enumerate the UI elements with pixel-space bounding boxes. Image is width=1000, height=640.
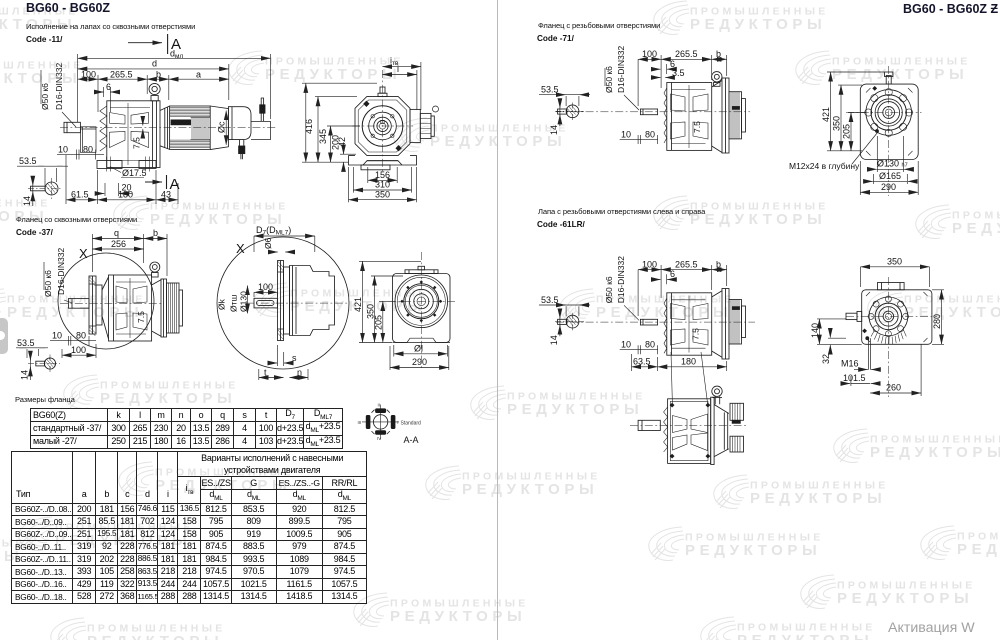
svg-text:10: 10 [621, 129, 631, 139]
svg-text:D16-DIN332: D16-DIN332 [54, 62, 64, 110]
svg-text:310: 310 [375, 180, 390, 190]
svg-text:265.5: 265.5 [675, 259, 698, 269]
svg-text:156: 156 [375, 170, 390, 180]
svg-text:Ø165: Ø165 [879, 171, 901, 181]
svg-text:3.5: 3.5 [672, 68, 685, 78]
svg-text:63.5: 63.5 [633, 356, 651, 366]
svg-text:X: X [236, 241, 245, 256]
svg-text:10: 10 [621, 340, 631, 350]
svg-text:265.5: 265.5 [675, 49, 698, 59]
svg-text:205: 205 [373, 315, 383, 330]
svg-text:180: 180 [118, 190, 133, 200]
svg-text:290: 290 [881, 182, 896, 192]
svg-text:b: b [153, 228, 158, 238]
svg-text:100: 100 [642, 259, 657, 269]
svg-text:D7(DML7): D7(DML7) [256, 225, 291, 237]
svg-text:b: b [716, 259, 721, 269]
svg-text:80: 80 [645, 340, 655, 350]
svg-text:7.5: 7.5 [136, 311, 146, 323]
svg-text:61.5: 61.5 [71, 190, 89, 200]
svg-text:Øl: Øl [414, 344, 423, 354]
svg-text:53.5: 53.5 [541, 85, 559, 95]
svg-text:416: 416 [304, 119, 314, 134]
svg-text:10: 10 [52, 331, 62, 341]
svg-text:Ø130 h7: Ø130 h7 [877, 159, 908, 169]
svg-text:205: 205 [842, 124, 852, 139]
svg-text:D16-DIN332: D16-DIN332 [56, 247, 66, 295]
svg-text:b: b [156, 69, 161, 79]
svg-text:42: 42 [337, 137, 347, 147]
svg-text:d: d [152, 59, 157, 69]
svg-text:80: 80 [645, 129, 655, 139]
svg-text:q: q [114, 228, 119, 238]
svg-text:14: 14 [549, 125, 559, 135]
svg-text:260: 260 [886, 383, 901, 393]
svg-text:D16-DIN332: D16-DIN332 [616, 45, 626, 93]
svg-text:7.5: 7.5 [691, 328, 701, 340]
svg-text:350: 350 [887, 257, 902, 267]
svg-text:14: 14 [549, 335, 559, 345]
svg-text:A: A [170, 176, 180, 193]
svg-text:X: X [79, 246, 88, 261]
svg-text:101.5: 101.5 [843, 373, 866, 383]
svg-text:Ø17.5: Ø17.5 [122, 168, 147, 178]
svg-text:100: 100 [71, 345, 86, 355]
svg-text:100: 100 [642, 49, 657, 59]
svg-text:100: 100 [258, 282, 273, 292]
svg-text:Ø50 к6: Ø50 к6 [604, 66, 614, 93]
svg-text:350: 350 [375, 189, 390, 199]
svg-text:a: a [196, 69, 201, 79]
svg-text:6: 6 [670, 269, 675, 279]
svg-text:14: 14 [20, 370, 30, 380]
svg-text:7.5: 7.5 [132, 137, 142, 149]
svg-text:345: 345 [318, 129, 328, 144]
svg-text:290: 290 [412, 357, 427, 367]
svg-text:Øс: Øс [217, 121, 227, 133]
svg-text:7.5: 7.5 [692, 121, 702, 133]
svg-text:A-A: A-A [404, 435, 419, 445]
svg-text:100: 100 [81, 69, 96, 79]
svg-text:180: 180 [681, 356, 696, 366]
svg-text:6: 6 [106, 82, 111, 92]
svg-text:Ø130: Ø130 [239, 291, 249, 312]
svg-text:Øтш: Øтш [229, 294, 239, 312]
svg-text:Standard: Standard [401, 420, 422, 426]
svg-text:D16-DIN332: D16-DIN332 [616, 256, 626, 304]
svg-text:M16: M16 [841, 358, 859, 368]
svg-text:32: 32 [821, 354, 831, 364]
svg-text:350: 350 [832, 116, 842, 131]
svg-text:421: 421 [353, 297, 363, 312]
svg-text:Ø50 к6: Ø50 к6 [43, 270, 53, 297]
svg-text:M12x24 в глубину: M12x24 в глубину [789, 161, 860, 171]
svg-text:14: 14 [22, 196, 32, 206]
svg-text:II: II [378, 403, 381, 408]
svg-text:i: i [397, 64, 399, 74]
svg-text:Ø6: Ø6 [263, 237, 273, 249]
svg-text:53.5: 53.5 [17, 338, 35, 348]
svg-text:Øk: Øk [217, 298, 227, 310]
svg-text:265.5: 265.5 [110, 69, 133, 79]
svg-text:140: 140 [810, 323, 820, 338]
svg-text:Ø50 к6: Ø50 к6 [40, 83, 50, 110]
svg-text:b: b [716, 49, 721, 59]
svg-text:III: III [358, 420, 362, 425]
svg-text:53.5: 53.5 [19, 156, 37, 166]
svg-text:10: 10 [58, 144, 68, 154]
svg-text:53.5: 53.5 [541, 295, 559, 305]
svg-text:IV: IV [377, 436, 381, 441]
svg-text:Ø50 к6: Ø50 к6 [604, 276, 614, 303]
svg-text:421: 421 [821, 107, 831, 122]
svg-text:80: 80 [83, 144, 93, 154]
svg-text:t: t [264, 367, 267, 377]
svg-text:256: 256 [111, 239, 126, 249]
svg-text:80: 80 [76, 331, 86, 341]
svg-text:s: s [292, 353, 297, 363]
svg-text:n: n [297, 367, 302, 377]
svg-text:280: 280 [932, 314, 942, 329]
svg-text:I: I [397, 420, 398, 425]
